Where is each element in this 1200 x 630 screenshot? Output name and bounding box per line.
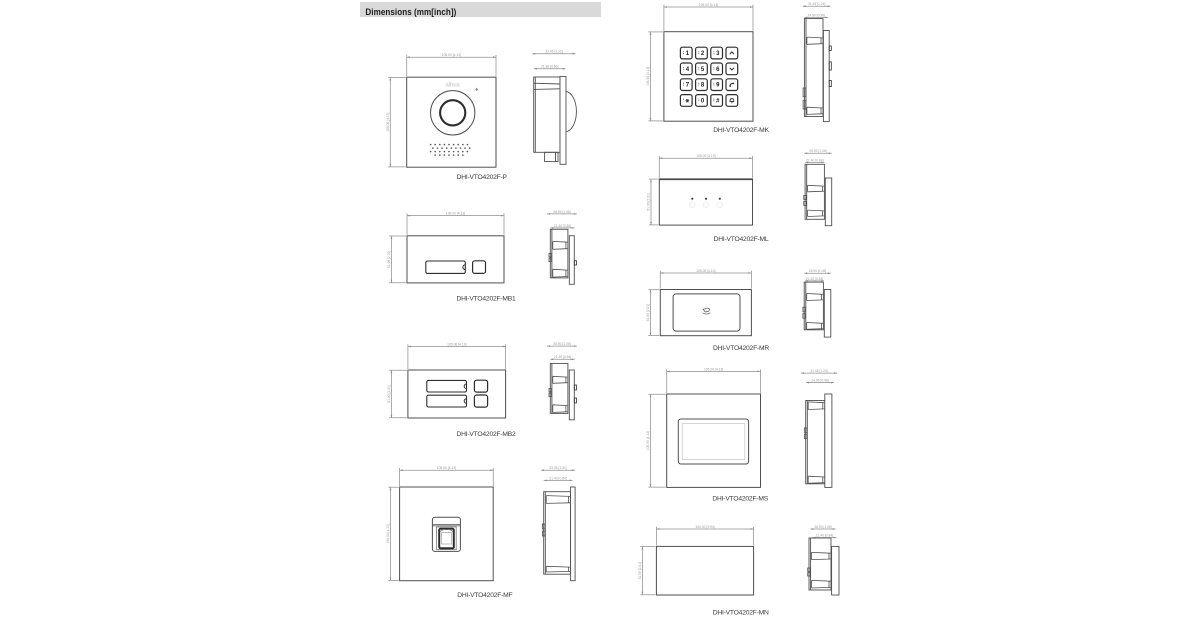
svg-text:0: 0 (701, 99, 705, 105)
svg-text:DHI-VTO4202F-P: DHI-VTO4202F-P (457, 174, 508, 181)
svg-text:DHI-VTO4202F-MB1: DHI-VTO4202F-MB1 (456, 296, 516, 303)
svg-text:DHI-VTO4202F-MS: DHI-VTO4202F-MS (712, 495, 768, 502)
svg-text:#: # (716, 99, 720, 105)
svg-text:51.00 [2.01]: 51.00 [2.01] (647, 193, 651, 210)
svg-text:7: 7 (686, 83, 690, 89)
svg-text:DHI-VTO4202F-MK: DHI-VTO4202F-MK (713, 127, 769, 134)
svg-text:105.00 [4.13]: 105.00 [4.13] (646, 67, 650, 86)
svg-text:26.90 [1.06]: 26.90 [1.06] (809, 269, 826, 273)
svg-text:4: 4 (686, 67, 690, 73)
svg-text:105.00 [4.13]: 105.00 [4.13] (696, 154, 715, 158)
svg-text:24.90 [0.98]: 24.90 [0.98] (811, 379, 828, 383)
svg-text:51.00 [2.01]: 51.00 [2.01] (387, 251, 391, 268)
svg-text:21.80 [0.86]: 21.80 [0.86] (541, 65, 558, 69)
svg-text:DHI-VTO4202F-ML: DHI-VTO4202F-ML (714, 236, 769, 243)
svg-text:21.40 [0.84]: 21.40 [0.84] (549, 476, 566, 480)
svg-text:3: 3 (716, 51, 720, 57)
svg-text:26.90 [1.06]: 26.90 [1.06] (814, 525, 831, 529)
svg-text:alhua: alhua (445, 83, 460, 89)
svg-text:21.40 [0.84]: 21.40 [0.84] (554, 224, 571, 228)
svg-text:105.00 [4.13]: 105.00 [4.13] (696, 269, 715, 273)
svg-text:9: 9 (716, 83, 720, 89)
svg-text:6: 6 (716, 67, 720, 73)
svg-text:DHI-VTO4202F-MB2: DHI-VTO4202F-MB2 (456, 431, 516, 438)
svg-text:33.45 [1.32]: 33.45 [1.32] (545, 50, 562, 54)
svg-text:105.00 [4.13]: 105.00 [4.13] (646, 431, 650, 450)
svg-text:2: 2 (701, 51, 705, 57)
svg-text:105.00 [4.13]: 105.00 [4.13] (704, 367, 723, 371)
svg-text:DHI-VTO4202F-MF: DHI-VTO4202F-MF (457, 592, 512, 599)
svg-text:21.40 [0.84]: 21.40 [0.84] (806, 277, 823, 281)
svg-text:105.00 [4.13]: 105.00 [4.13] (442, 53, 461, 57)
svg-text:1: 1 (686, 51, 690, 57)
svg-text:51.00 [2.01]: 51.00 [2.01] (387, 385, 391, 402)
svg-text:105.00 [4.13]: 105.00 [4.13] (447, 342, 466, 346)
svg-text:5: 5 (701, 67, 705, 73)
svg-text:21.40 [0.84]: 21.40 [0.84] (554, 355, 571, 359)
svg-text:105.00 [4.13]: 105.00 [4.13] (446, 212, 465, 216)
svg-text:8: 8 (701, 83, 705, 89)
svg-text:26.90 [1.06]: 26.90 [1.06] (553, 342, 570, 346)
svg-text:DHI-VTO4202F-MR: DHI-VTO4202F-MR (713, 345, 769, 352)
svg-text:105.00 [4.13]: 105.00 [4.13] (386, 524, 390, 543)
svg-text:105.00 [4.13]: 105.00 [4.13] (386, 112, 390, 131)
svg-text:105.00 [4.13]: 105.00 [4.13] (437, 466, 456, 470)
svg-text:21.40 [0.84]: 21.40 [0.84] (816, 534, 833, 538)
svg-text:100.00 [3.94]: 100.00 [3.94] (695, 525, 714, 529)
svg-text:26.90 [1.06]: 26.90 [1.06] (553, 210, 570, 214)
svg-text:24.90 [0.98]: 24.90 [0.98] (807, 13, 824, 17)
svg-text:51.00 [2.01]: 51.00 [2.01] (638, 562, 642, 579)
svg-text:33.30 [1.31]: 33.30 [1.31] (549, 466, 566, 470)
svg-text:105.00 [4.13]: 105.00 [4.13] (699, 3, 718, 7)
svg-text:31.45 [1.24]: 31.45 [1.24] (810, 369, 827, 373)
svg-text:26.90 [1.06]: 26.90 [1.06] (809, 149, 826, 153)
svg-text:31.45 [1.24]: 31.45 [1.24] (808, 2, 825, 6)
svg-text:51.00 [2.01]: 51.00 [2.01] (646, 304, 650, 321)
svg-text:21.40 [0.84]: 21.40 [0.84] (806, 158, 823, 162)
svg-text:DHI-VTO4202F-MN: DHI-VTO4202F-MN (713, 609, 769, 616)
